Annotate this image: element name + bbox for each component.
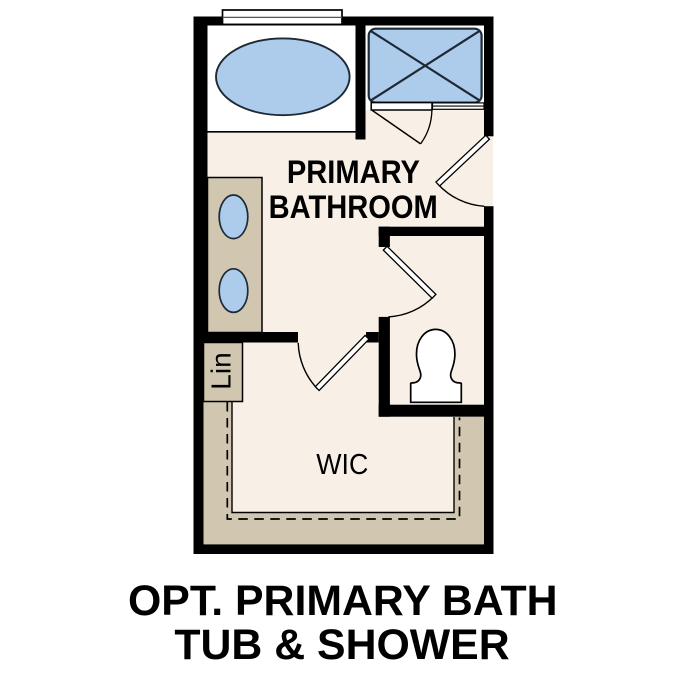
svg-text:WIC: WIC bbox=[316, 448, 368, 480]
svg-text:BATHROOM: BATHROOM bbox=[269, 190, 438, 226]
svg-text:Lin: Lin bbox=[206, 352, 237, 389]
svg-text:PRIMARY: PRIMARY bbox=[287, 155, 420, 191]
svg-text:TUB & SHOWER: TUB & SHOWER bbox=[174, 621, 509, 669]
svg-text:OPT. PRIMARY BATH: OPT. PRIMARY BATH bbox=[128, 577, 558, 625]
